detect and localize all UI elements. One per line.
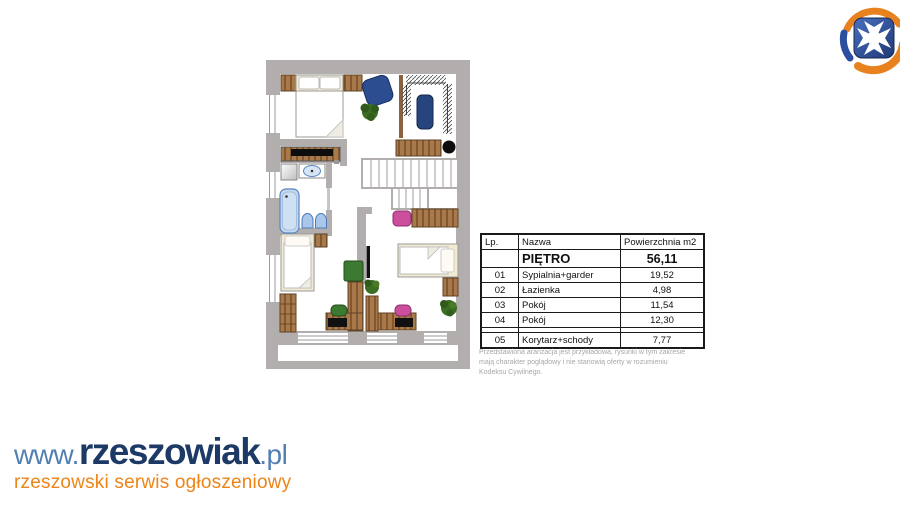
cell-nazwa: Pokój: [519, 313, 621, 328]
plant: [365, 280, 380, 295]
table-row: 02 Łazienka 4,98: [481, 283, 704, 298]
table-row: 03 Pokój 11,54: [481, 298, 704, 313]
lamp: [443, 141, 456, 154]
cell-area: 7,77: [621, 333, 705, 349]
cell-floor-name: PIĘTRO: [519, 250, 621, 268]
header-area: Powierzchnia m2: [621, 234, 705, 250]
single-bed: [398, 244, 458, 277]
pouf: [393, 211, 411, 226]
cell-area: 12,30: [621, 313, 705, 328]
cell-lp: 01: [481, 268, 519, 283]
toilet: [302, 214, 313, 228]
plant: [440, 300, 457, 317]
disclaimer-text: Przedstawiona aranżacja jest przykładowa…: [479, 348, 693, 378]
cell-area: 19,52: [621, 268, 705, 283]
cell-area: 4,98: [621, 283, 705, 298]
bidet: [316, 214, 327, 228]
cell-nazwa: Pokój: [519, 298, 621, 313]
bedroom-furniture: [281, 74, 395, 164]
cell-nazwa: Sypialnia+garder: [519, 268, 621, 283]
double-bed: [296, 75, 343, 137]
logo-tagline: rzeszowski serwis ogłoszeniowy: [14, 473, 291, 492]
table-row: 01 Sypialnia+garder 19,52: [481, 268, 704, 283]
site-logo: www.rzeszowiak.pl rzeszowski serwis ogło…: [14, 433, 291, 492]
bathroom-fixtures: [280, 164, 327, 233]
desk-chair: [331, 305, 347, 316]
logo-tld: .pl: [259, 439, 287, 470]
armchair: [361, 74, 395, 108]
green-cabinet: [344, 261, 363, 281]
wardrobe-area: [396, 75, 456, 156]
table-row: 05 Korytarz+schody 7,77: [481, 333, 704, 349]
logo-www: www.: [14, 439, 79, 470]
listing-image: Lp. Nazwa Powierzchnia m2 PIĘTRO 56,11 0…: [0, 0, 900, 506]
floor-plan: [262, 52, 478, 376]
table-header-row: Lp. Nazwa Powierzchnia m2: [481, 234, 704, 250]
cell-lp: 05: [481, 333, 519, 349]
tv-sideboard: [281, 147, 340, 164]
commode: [396, 140, 441, 156]
lounge-chair: [417, 95, 433, 129]
header-nazwa: Nazwa: [519, 234, 621, 250]
table-row: 04 Pokój 12,30: [481, 313, 704, 328]
single-bed: [281, 234, 314, 291]
room3-furniture: [280, 234, 363, 332]
staircase: [362, 159, 458, 209]
cell-lp: 03: [481, 298, 519, 313]
room4-furniture: [365, 209, 459, 331]
cell-lp: 04: [481, 313, 519, 328]
brand-emblem-icon: [838, 4, 900, 76]
area-table: Lp. Nazwa Powierzchnia m2 PIĘTRO 56,11 0…: [480, 233, 705, 349]
cell-nazwa: Korytarz+schody: [519, 333, 621, 349]
header-lp: Lp.: [481, 234, 519, 250]
desk-chair: [395, 305, 411, 316]
logo-name: rzeszowiak: [79, 431, 259, 472]
cell-area: 11,54: [621, 298, 705, 313]
cell-nazwa: Łazienka: [519, 283, 621, 298]
plant: [361, 104, 380, 122]
cell-lp: [481, 250, 519, 268]
cell-lp: 02: [481, 283, 519, 298]
cell-total-area: 56,11: [621, 250, 705, 268]
table-row-floor-title: PIĘTRO 56,11: [481, 250, 704, 268]
